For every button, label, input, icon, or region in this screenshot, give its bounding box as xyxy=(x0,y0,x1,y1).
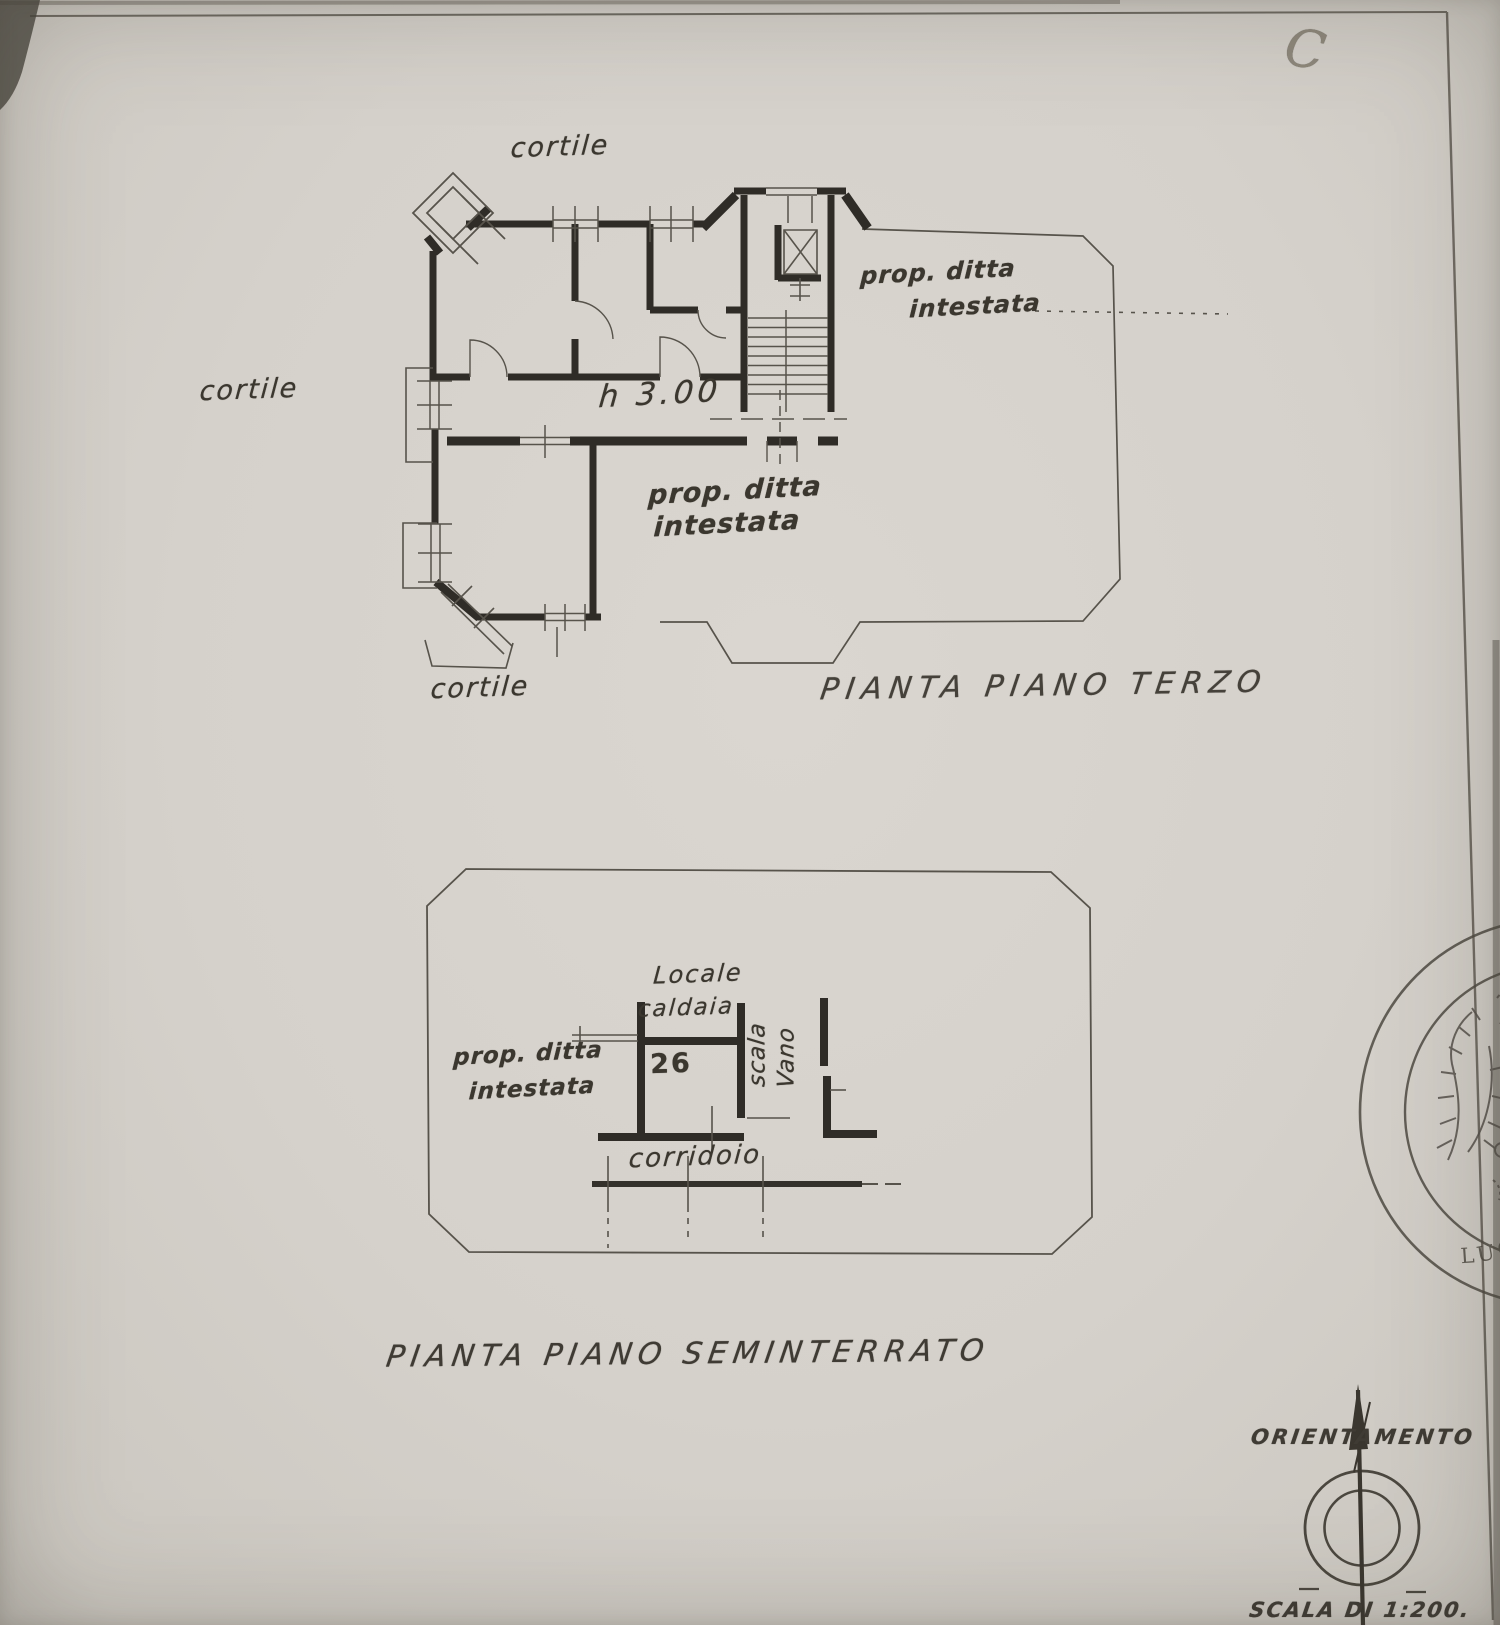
stair-shaft-label-line1: Vano xyxy=(772,1026,801,1090)
boiler-room-label-line1: Locale xyxy=(652,958,743,989)
scanned-plan-sheet: LUCA SAVERIO FELICE DI C cortile cortile… xyxy=(0,0,1500,1625)
corridor-label: corridoio xyxy=(628,1140,762,1175)
stair-shaft-label-line2: scala xyxy=(743,1021,772,1088)
courtyard-label-top: cortile xyxy=(510,130,611,165)
diamond-bay-window xyxy=(413,173,505,264)
sheet-frame xyxy=(0,0,1497,1625)
basement-caption: PIANTA PIANO SEMINTERRATO xyxy=(384,1333,992,1374)
ceiling-height-note: h 3.00 xyxy=(597,373,723,416)
orientation-compass xyxy=(1299,1384,1426,1625)
elevator xyxy=(784,230,817,301)
courtyard-label-bottom: cortile xyxy=(430,671,531,706)
orientation-label: ORIENTAMENTO xyxy=(1249,1425,1476,1449)
dashed-boundary-line xyxy=(1035,311,1228,314)
boiler-room-label-line2: caldaia xyxy=(637,993,735,1022)
diagonal-bay-window xyxy=(425,584,513,668)
scale-label: SCALA DI 1:200. xyxy=(1248,1598,1472,1622)
stair-shaft-walls xyxy=(824,998,877,1138)
plan-drawing: LUCA SAVERIO FELICE DI xyxy=(0,0,1500,1625)
courtyard-label-left: cortile xyxy=(199,373,300,408)
scan-corner-smudge xyxy=(0,0,40,110)
north-arrow-icon xyxy=(1349,1384,1370,1625)
window-symbols xyxy=(417,188,817,657)
stair-shaft-label: Vano scala xyxy=(743,1021,801,1091)
room-number: 26 xyxy=(650,1048,693,1080)
stairs-treads xyxy=(748,318,828,394)
building-outline xyxy=(660,229,1120,663)
elevator-x-icon xyxy=(784,230,817,274)
third-floor-plan xyxy=(403,173,1228,668)
stamp-inner-ring xyxy=(1405,964,1500,1260)
